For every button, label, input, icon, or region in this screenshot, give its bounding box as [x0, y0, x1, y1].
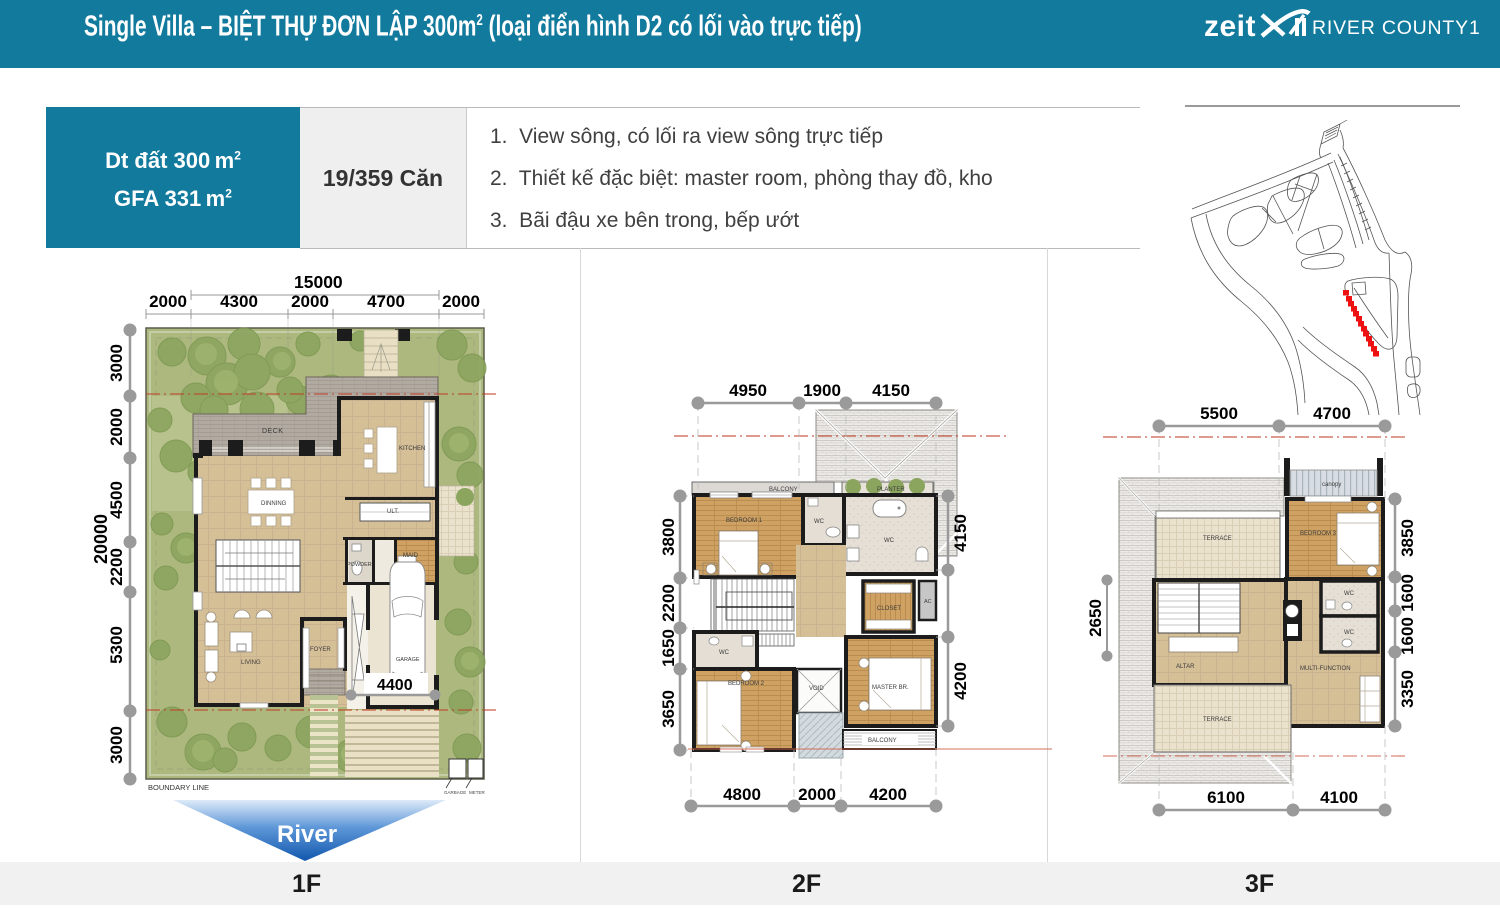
svg-text:3000: 3000 — [107, 726, 126, 764]
svg-text:5300: 5300 — [107, 626, 126, 664]
svg-text:1900: 1900 — [803, 381, 841, 400]
svg-text:3850: 3850 — [1398, 519, 1417, 557]
svg-text:4500: 4500 — [107, 481, 126, 519]
svg-text:4400: 4400 — [377, 677, 413, 694]
svg-text:4200: 4200 — [869, 785, 907, 804]
svg-text:4150: 4150 — [951, 514, 970, 552]
svg-text:ALTAR: ALTAR — [1176, 664, 1195, 670]
svg-text:4800: 4800 — [723, 785, 761, 804]
svg-text:canopy: canopy — [1322, 482, 1341, 488]
svg-text:4100: 4100 — [1320, 788, 1358, 807]
svg-text:5500: 5500 — [1200, 404, 1238, 423]
svg-text:4150: 4150 — [872, 381, 910, 400]
svg-text:15000: 15000 — [294, 272, 343, 292]
svg-text:GARBAGE: GARBAGE — [444, 790, 466, 795]
svg-text:MASTER BR.: MASTER BR. — [872, 685, 909, 691]
svg-text:TERRACE: TERRACE — [1203, 717, 1232, 723]
svg-text:WC: WC — [884, 538, 895, 544]
svg-text:CLOSET: CLOSET — [877, 606, 901, 612]
svg-text:BEDROOM 1: BEDROOM 1 — [726, 518, 763, 524]
svg-text:VOID: VOID — [809, 686, 824, 692]
svg-text:TERRACE: TERRACE — [1203, 536, 1232, 542]
svg-text:KITCHEN: KITCHEN — [399, 446, 425, 452]
svg-text:4200: 4200 — [951, 662, 970, 700]
svg-text:METER: METER — [469, 790, 486, 795]
svg-text:BEDROOM 2: BEDROOM 2 — [728, 681, 765, 687]
svg-text:3350: 3350 — [1398, 670, 1417, 708]
svg-text:WC: WC — [814, 519, 825, 525]
svg-text:4700: 4700 — [367, 292, 405, 311]
svg-text:2000: 2000 — [149, 292, 187, 311]
svg-text:AC: AC — [924, 599, 932, 605]
svg-text:River: River — [277, 821, 337, 848]
svg-text:BOUNDARY LINE: BOUNDARY LINE — [148, 783, 209, 792]
svg-text:2000: 2000 — [291, 292, 329, 311]
svg-text:2200: 2200 — [659, 584, 678, 622]
svg-text:POWDER: POWDER — [347, 562, 372, 568]
svg-text:WC: WC — [719, 650, 730, 656]
svg-text:1600: 1600 — [1398, 574, 1417, 612]
svg-text:4700: 4700 — [1313, 404, 1351, 423]
svg-text:GARAGE: GARAGE — [396, 657, 420, 663]
svg-text:WC: WC — [1344, 630, 1355, 636]
svg-text:3800: 3800 — [659, 518, 678, 556]
svg-text:4300: 4300 — [220, 292, 258, 311]
svg-text:2000: 2000 — [107, 408, 126, 446]
svg-text:MULTI-FUNCTION: MULTI-FUNCTION — [1300, 666, 1351, 672]
svg-text:3000: 3000 — [107, 344, 126, 382]
svg-text:1650: 1650 — [659, 629, 678, 667]
svg-text:2650: 2650 — [1086, 599, 1105, 637]
svg-text:4950: 4950 — [729, 381, 767, 400]
svg-text:BALCONY: BALCONY — [868, 738, 897, 744]
svg-text:BEDROOM 3: BEDROOM 3 — [1300, 531, 1337, 537]
svg-text:1600: 1600 — [1398, 617, 1417, 655]
svg-text:DECK: DECK — [262, 428, 283, 435]
svg-text:PLANTER: PLANTER — [877, 487, 905, 493]
svg-text:DINNING: DINNING — [261, 501, 287, 507]
svg-text:LIVING: LIVING — [241, 660, 261, 666]
svg-text:WC: WC — [1344, 591, 1355, 597]
svg-text:FOYER: FOYER — [310, 647, 331, 653]
svg-text:20000: 20000 — [91, 514, 111, 564]
svg-text:2000: 2000 — [442, 292, 480, 311]
svg-text:6100: 6100 — [1207, 788, 1245, 807]
svg-text:2000: 2000 — [798, 785, 836, 804]
svg-text:MAID: MAID — [403, 553, 419, 559]
svg-text:ULT.: ULT. — [387, 509, 399, 515]
svg-text:3650: 3650 — [659, 690, 678, 728]
